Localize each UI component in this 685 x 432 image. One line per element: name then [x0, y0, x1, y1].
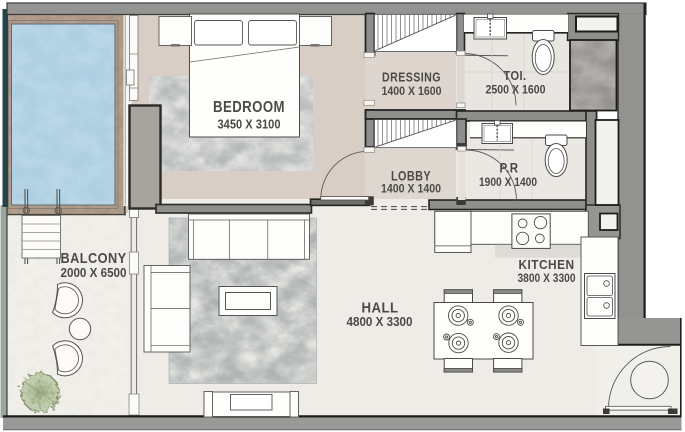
svg-text:TOI.: TOI. [504, 68, 527, 83]
svg-text:4800 X 3300: 4800 X 3300 [347, 315, 413, 329]
svg-text:1900 X 1400: 1900 X 1400 [479, 175, 537, 189]
svg-text:BEDROOM: BEDROOM [213, 99, 285, 116]
svg-text:2500 X 1600: 2500 X 1600 [486, 83, 546, 97]
svg-text:2000 X 6500: 2000 X 6500 [61, 266, 127, 280]
svg-text:1400 X 1600: 1400 X 1600 [382, 84, 442, 98]
svg-text:3450 X 3100: 3450 X 3100 [218, 117, 281, 132]
svg-text:KITCHEN: KITCHEN [519, 257, 575, 272]
svg-text:3800 X 3300: 3800 X 3300 [518, 271, 576, 285]
svg-text:HALL: HALL [362, 300, 399, 317]
svg-text:P.R: P.R [500, 161, 519, 176]
svg-text:1400 X 1400: 1400 X 1400 [381, 182, 441, 196]
svg-text:BALCONY: BALCONY [61, 250, 127, 267]
svg-text:DRESSING: DRESSING [382, 71, 441, 85]
